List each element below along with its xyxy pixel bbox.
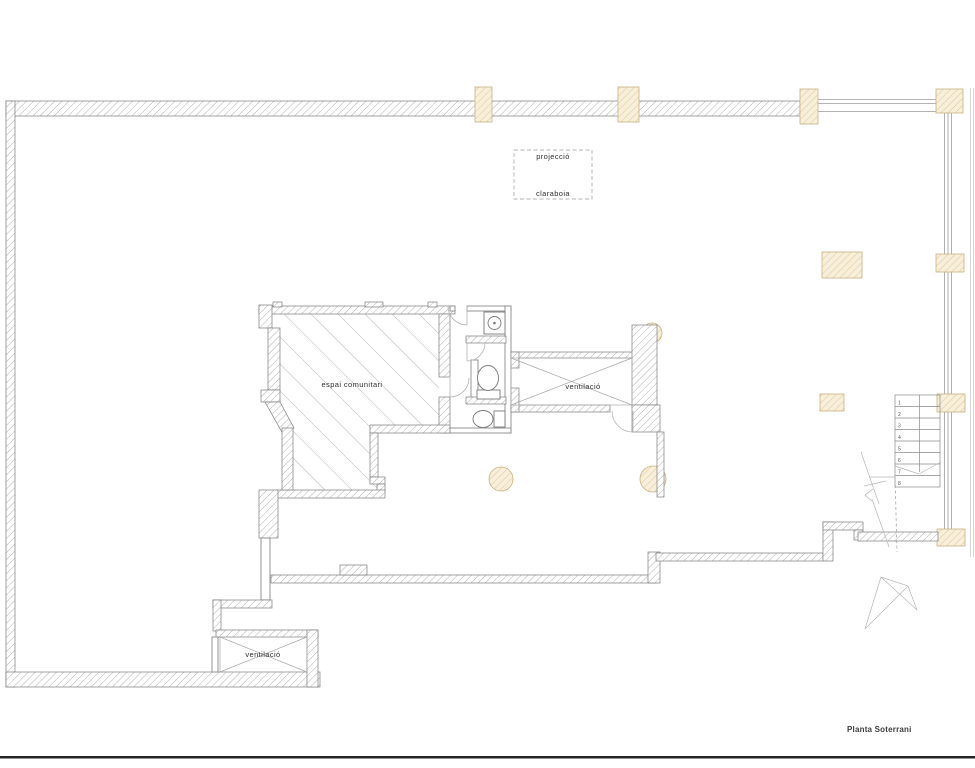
bathroom-block — [448, 306, 511, 433]
outer-walls — [6, 101, 800, 687]
column — [822, 252, 862, 278]
column — [618, 87, 639, 122]
vent-shaft-center: ventilació — [511, 325, 664, 497]
title-block: Planta Soterrani — [0, 725, 975, 759]
stair-step-number: 4 — [898, 435, 901, 441]
lower-walls — [213, 522, 938, 631]
skylight-projection: projecció claraboia — [514, 150, 592, 199]
column — [800, 89, 818, 124]
skylight-label-top: projecció — [536, 152, 570, 161]
door-swing — [612, 411, 633, 432]
stair-step-number: 5 — [898, 447, 901, 453]
bottom-wall — [6, 672, 320, 687]
stairs: 1 2 3 4 5 6 7 8 — [861, 395, 941, 552]
toilet-icon — [473, 411, 505, 428]
round-column — [489, 467, 513, 491]
stair-step-number: 1 — [898, 401, 901, 407]
stair-step-number: 7 — [898, 470, 901, 476]
top-wall — [6, 101, 800, 116]
stair-step-number: 3 — [898, 424, 901, 430]
communal-room-label: espai comunitari — [321, 380, 382, 389]
column — [820, 394, 844, 411]
stair-step-number: 8 — [898, 481, 901, 487]
vent-center-label: ventilació — [565, 382, 600, 391]
column — [936, 89, 963, 113]
drawing-sheet: projecció claraboia — [0, 0, 975, 768]
stair-step-number: 6 — [898, 458, 901, 464]
sheet-border-line — [0, 756, 975, 759]
column — [937, 394, 965, 412]
floor-plan: projecció claraboia — [0, 0, 975, 768]
vent-bottom-label: ventilació — [245, 650, 280, 659]
north-arrow-icon — [865, 577, 917, 629]
toilet-icon — [477, 366, 500, 400]
stair-step-number: 2 — [898, 412, 901, 418]
skylight-label-bottom: claraboia — [536, 189, 570, 198]
sheet-title: Planta Soterrani — [847, 725, 912, 734]
partition-wall — [466, 336, 506, 343]
column — [937, 529, 965, 546]
sink-icon — [484, 312, 505, 334]
left-wall — [6, 101, 15, 687]
column — [936, 254, 964, 272]
right-boundary-wall — [818, 88, 974, 557]
column — [475, 87, 492, 122]
